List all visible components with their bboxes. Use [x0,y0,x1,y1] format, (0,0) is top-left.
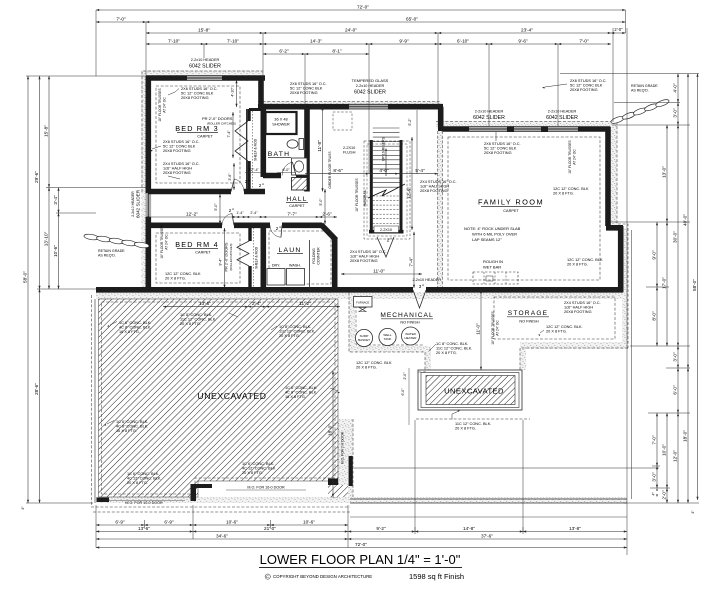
svg-text:5C 12" CONC BLK: 5C 12" CONC BLK [484,147,517,151]
svg-text:10'-0": 10'-0" [662,444,667,456]
svg-text:SHELF & ROD: SHELF & ROD [254,138,258,161]
svg-text:6'-2": 6'-2" [279,48,289,53]
svg-text:18'-0": 18'-0" [683,430,688,442]
svg-text:11'-8": 11'-8" [317,140,322,152]
svg-text:11'-0": 11'-0" [373,268,385,273]
svg-text:16 X 8 FTG.: 16 X 8 FTG. [119,330,140,334]
svg-text:FURNACE: FURNACE [356,301,369,305]
svg-text:11C 12" CONC. BLK.: 11C 12" CONC. BLK. [279,330,315,334]
svg-text:1C 8" CONC. BLK.: 1C 8" CONC. BLK. [436,342,468,346]
svg-text:18" FLOOR TRUSSES: 18" FLOOR TRUSSES [491,310,495,344]
svg-text:UNEXCAVATED: UNEXCAVATED [197,391,266,401]
svg-text:2'-0": 2'-0" [614,27,623,32]
svg-text:5C 12" CONC BLK: 5C 12" CONC BLK [181,92,214,96]
svg-text:NO FINISH: NO FINISH [400,321,419,325]
svg-text:20 X 8 FTG.: 20 X 8 FTG. [180,322,201,326]
svg-text:6042 SLIDER: 6042 SLIDER [136,189,141,218]
svg-text:M.O. FOR 2'-8 DOOR: M.O. FOR 2'-8 DOOR [341,431,345,464]
svg-text:2X6 STUDS 16" O.C.: 2X6 STUDS 16" O.C. [570,79,607,83]
svg-text:WET BAR: WET BAR [483,265,501,270]
svg-text:20 X 8 FTG.: 20 X 8 FTG. [553,192,574,196]
svg-text:2X6 STUDS 16" O.C.: 2X6 STUDS 16" O.C. [484,142,521,146]
svg-text:1C 6" CONC. BLK.: 1C 6" CONC. BLK. [127,472,159,476]
svg-text:1'-4": 1'-4" [236,211,244,215]
svg-text:7'-4": 7'-4" [227,130,231,138]
svg-text:PR 2'-0" DOORS: PR 2'-0" DOORS [202,116,233,121]
svg-text:1c6" HALF HIGH: 1c6" HALF HIGH [350,255,379,259]
svg-text:2-2X10: 2-2X10 [343,146,355,150]
svg-text:11C 12" CONC. BLK.: 11C 12" CONC. BLK. [436,347,472,351]
svg-text:8'-0": 8'-0" [652,311,657,321]
svg-text:CARPET: CARPET [195,251,211,255]
svg-text:A: A [248,178,250,182]
svg-text:11C 12" CONC. BLK.: 11C 12" CONC. BLK. [180,318,216,322]
svg-text:20X8 FOOTING: 20X8 FOOTING [570,88,598,92]
svg-text:13'-0": 13'-0" [662,166,667,178]
svg-text:2X4 STUDS 16" O.C.: 2X4 STUDS 16" O.C. [350,250,387,254]
svg-text:COUNTER: COUNTER [317,247,321,265]
svg-text:2X6 STUDS 16" O.C.: 2X6 STUDS 16" O.C. [163,140,200,144]
svg-text:5C 12" CONC BLK: 5C 12" CONC BLK [570,84,603,88]
svg-text:10'-6": 10'-6" [303,519,315,524]
svg-text:18'-0": 18'-0" [328,424,333,436]
svg-text:20 X 8 FTG.: 20 X 8 FTG. [567,263,588,267]
svg-text:4C 12" CONC. BLK: 4C 12" CONC. BLK [242,467,276,471]
svg-text:CARPET: CARPET [289,204,305,208]
svg-text:20 X 8 FTG.: 20 X 8 FTG. [242,471,263,475]
svg-text:LAUN: LAUN [279,247,302,254]
svg-text:7'-0": 7'-0" [116,16,126,21]
svg-text:20X8 FOOTING: 20X8 FOOTING [290,91,318,95]
svg-text:A: A [262,182,264,186]
svg-text:12'-6": 12'-6" [407,187,412,199]
svg-text:40'-0": 40'-0" [683,214,688,226]
svg-text:7'-4": 7'-4" [409,257,414,267]
svg-text:18" FLOOR TRUSSES: 18" FLOOR TRUSSES [355,177,359,211]
svg-text:A: A [390,237,392,241]
svg-text:1C 6" CONC. BLK.: 1C 6" CONC. BLK. [242,462,274,466]
svg-text:10'-6": 10'-6" [226,519,238,524]
svg-text:20 X 8 FTG.: 20 X 8 FTG. [165,277,186,281]
svg-text:20X8 FOOTING: 20X8 FOOTING [420,189,448,193]
svg-text:11'-2": 11'-2" [299,301,311,306]
svg-text:CARPET: CARPET [197,135,213,139]
svg-text:WASH.: WASH. [289,264,301,268]
svg-text:4'-0": 4'-0" [673,83,678,93]
svg-text:7'-10": 7'-10" [168,38,180,43]
svg-text:AT 24" OC: AT 24" OC [496,320,500,336]
svg-text:3'-6": 3'-6" [228,173,232,181]
svg-text:AS REQ'D.: AS REQ'D. [631,89,649,93]
svg-text:15'-8": 15'-8" [44,125,49,137]
svg-text:65'-0": 65'-0" [406,16,418,21]
svg-text:FLUSH: FLUSH [343,151,356,155]
svg-text:ROUGH IN: ROUGH IN [483,259,503,264]
svg-text:(ROLLER CATCHES): (ROLLER CATCHES) [229,243,233,270]
svg-text:SHOWER: SHOWER [272,122,290,127]
svg-text:2X4 STUDS 16" O.C.: 2X4 STUDS 16" O.C. [163,162,200,166]
svg-text:3'-0": 3'-0" [673,352,678,362]
svg-text:10'-6": 10'-6" [53,245,58,257]
svg-text:16 X 8 FTG.: 16 X 8 FTG. [116,429,137,433]
svg-text:1C 6" CONC. BLK.: 1C 6" CONC. BLK. [119,321,151,325]
svg-text:6'-10": 6'-10" [457,38,469,43]
svg-text:72'-0": 72'-0" [355,542,367,547]
svg-text:(ROLLER CATCHES): (ROLLER CATCHES) [207,121,236,125]
svg-text:20 X 8 FTG.: 20 X 8 FTG. [546,330,567,334]
svg-text:9'-0": 9'-0" [652,250,657,260]
svg-text:5'-2": 5'-2" [408,118,412,126]
svg-text:9'-9": 9'-9" [399,38,409,43]
svg-text:9'-6": 9'-6" [518,38,528,43]
svg-text:18" FLOOR TRUSSES: 18" FLOOR TRUSSES [568,139,572,173]
svg-text:AS REQ'D.: AS REQ'D. [98,254,116,258]
svg-text:2'-0": 2'-0" [403,372,407,380]
svg-text:21'-0": 21'-0" [264,526,276,531]
svg-text:13'-10": 13'-10" [44,231,49,246]
svg-text:12C 12" CONC. BLK: 12C 12" CONC. BLK [356,361,392,365]
svg-text:3'-0": 3'-0" [673,108,678,118]
svg-text:TANK: TANK [384,337,392,341]
svg-text:24'-0": 24'-0" [345,27,357,32]
svg-text:UP 16 RISERS: UP 16 RISERS [382,136,386,161]
svg-text:1C 6" CONC. BLK.: 1C 6" CONC. BLK. [116,420,148,424]
svg-text:12C 12" CONC. BLK: 12C 12" CONC. BLK [553,187,589,191]
svg-text:1598 sq ft Finish: 1598 sq ft Finish [409,572,464,581]
svg-text:1C 6" CONC. BLK.: 1C 6" CONC. BLK. [285,386,317,390]
svg-text:2-2x10 HEADER: 2-2x10 HEADER [356,84,385,88]
svg-text:NOTE: 4" ROCK UNDER SLAB: NOTE: 4" ROCK UNDER SLAB [464,226,521,231]
svg-text:12C 12" CONC. BLK: 12C 12" CONC. BLK [567,258,603,262]
svg-text:8'-6": 8'-6" [333,168,343,173]
svg-text:12'-0": 12'-0" [673,450,678,462]
svg-text:1c6" HALF HIGH: 1c6" HALF HIGH [564,306,593,310]
svg-text:6'-0": 6'-0" [282,168,290,172]
svg-text:5'-0": 5'-0" [319,198,323,206]
svg-text:18" FLOOR TRUSSES: 18" FLOOR TRUSSES [158,87,162,121]
svg-text:LAP SEAMS 12": LAP SEAMS 12" [472,237,502,242]
svg-text:NO FINISH: NO FINISH [519,320,538,324]
svg-text:20X8 FOOTING: 20X8 FOOTING [484,151,512,155]
svg-text:12C 12" CONC. BLK.: 12C 12" CONC. BLK. [546,325,583,329]
svg-text:BASKET: BASKET [358,338,370,342]
svg-text:7'-7": 7'-7" [287,211,297,216]
svg-text:GIRDER FLOOR TRUSS: GIRDER FLOOR TRUSS [328,151,332,189]
svg-text:C: C [266,574,269,579]
svg-text:6'-9": 6'-9" [115,519,125,524]
svg-text:6'-0": 6'-0" [673,385,678,395]
svg-text:13'-6": 13'-6" [138,526,150,531]
svg-text:20X8 FOOTING: 20X8 FOOTING [564,310,592,314]
svg-text:A: A [232,207,234,211]
svg-text:20 X 8 FTG.: 20 X 8 FTG. [127,481,148,485]
svg-text:7'-10": 7'-10" [227,38,239,43]
svg-text:HALL: HALL [286,196,307,203]
svg-text:2X6 STUDS 16" O.C.: 2X6 STUDS 16" O.C. [181,87,218,91]
svg-text:BED RM 4: BED RM 4 [175,240,219,249]
svg-text:WITH 6 MIL POLY OVER: WITH 6 MIL POLY OVER [472,232,517,237]
svg-text:29'-6": 29'-6" [34,171,39,183]
svg-text:TEMPERED GLASS: TEMPERED GLASS [352,78,389,83]
svg-text:RETAIN GRADE: RETAIN GRADE [98,249,125,253]
svg-text:5C 12" CONC BLK: 5C 12" CONC BLK [290,87,323,91]
svg-text:6042 SLIDER: 6042 SLIDER [546,115,578,121]
svg-text:A: A [422,283,424,287]
svg-text:2-2X10: 2-2X10 [380,228,392,232]
svg-text:3'-0": 3'-0" [652,472,657,482]
svg-text:MECHANICAL: MECHANICAL [380,312,433,319]
svg-text:2-2x10 HEADER: 2-2x10 HEADER [131,191,135,217]
svg-text:A: A [279,225,281,229]
svg-text:2'-4": 2'-4" [252,301,262,306]
svg-text:9'-4": 9'-4" [219,258,223,266]
svg-text:AT 24" OC: AT 24" OC [163,97,167,113]
svg-text:8'-1": 8'-1" [332,48,342,53]
svg-text:SHELF & ROD: SHELF & ROD [255,246,259,269]
svg-text:20X8 FOOTING: 20X8 FOOTING [163,171,191,175]
svg-text:20X8 FOOTING: 20X8 FOOTING [350,259,378,263]
svg-text:2'-4": 2'-4" [250,211,258,215]
svg-text:13'-6": 13'-6" [199,301,211,306]
svg-text:M.O. FOR 16-0 DOOR: M.O. FOR 16-0 DOOR [247,486,285,490]
svg-text:6042 SLIDER: 6042 SLIDER [189,64,221,70]
svg-text:UNEXCAVATED: UNEXCAVATED [444,387,504,396]
svg-text:COPYRIGHT BEYOND DESIGN ARCHIT: COPYRIGHT BEYOND DESIGN ARCHITECTURE [273,574,372,579]
svg-text:2-2x10 HEADER: 2-2x10 HEADER [548,110,577,114]
svg-text:BATH: BATH [268,151,290,158]
svg-text:1C 8" CONC. BLK.: 1C 8" CONC. BLK. [279,325,311,329]
svg-text:9'-2": 9'-2" [376,526,386,531]
svg-text:15'-8": 15'-8" [198,27,210,32]
svg-text:DRY.: DRY. [272,264,280,268]
svg-text:20 X 8 FTG.: 20 X 8 FTG. [455,427,476,431]
svg-text:CARPET: CARPET [503,209,519,213]
svg-text:14'-3": 14'-3" [310,38,322,43]
svg-text:LOWER FLOOR PLAN 1/4" = 1'-0": LOWER FLOOR PLAN 1/4" = 1'-0" [260,552,461,567]
svg-text:4C 8" CONC. BLK.: 4C 8" CONC. BLK. [285,391,317,395]
svg-text:34'-6": 34'-6" [216,533,228,538]
svg-text:FAMILY ROOM: FAMILY ROOM [478,198,544,207]
svg-text:12C 12" CONC. BLK: 12C 12" CONC. BLK [165,272,201,276]
svg-text:2'-6": 2'-6" [322,211,332,216]
svg-text:AT 24" OC: AT 24" OC [165,234,169,250]
svg-text:18" FLOOR TRUSSES: 18" FLOOR TRUSSES [160,224,164,258]
svg-text:7'-0": 7'-0" [579,38,589,43]
svg-text:4C 12" CONC. BLK.: 4C 12" CONC. BLK. [127,477,161,481]
svg-text:1C 8" CONC. BLK.: 1C 8" CONC. BLK. [180,313,212,317]
svg-text:1c6" HALF HIGH: 1c6" HALF HIGH [163,167,192,171]
svg-text:6'-0": 6'-0" [401,388,405,396]
svg-text:13'-8": 13'-8" [569,526,581,531]
svg-text:STORAGE: STORAGE [508,310,549,317]
svg-text:HEATER: HEATER [405,336,418,340]
svg-text:M.O. FOR 10-0 DOOR: M.O. FOR 10-0 DOOR [125,501,163,505]
svg-text:14'-8": 14'-8" [463,526,475,531]
svg-text:11C 12" CONC. BLK.: 11C 12" CONC. BLK. [455,422,491,426]
svg-text:16 X 8 FTG.: 16 X 8 FTG. [285,395,306,399]
svg-text:20X8 FOOTING: 20X8 FOOTING [181,96,209,100]
svg-text:4'-10": 4'-10" [231,87,235,97]
svg-text:30'-0": 30'-0" [673,231,678,243]
svg-text:6042 SLIDER: 6042 SLIDER [354,90,386,96]
svg-text:5C 12" CONC BLK: 5C 12" CONC BLK [163,145,196,149]
svg-text:4C 8" CONC. BLK.: 4C 8" CONC. BLK. [116,425,148,429]
svg-text:4C 8" CONC. BLK.: 4C 8" CONC. BLK. [119,326,151,330]
svg-text:5'-0": 5'-0" [214,203,218,211]
svg-text:2X6 STUDS 16" O.C.: 2X6 STUDS 16" O.C. [290,82,327,86]
svg-text:AT 24" OC: AT 24" OC [573,149,577,165]
svg-text:2-2x10 HEADER: 2-2x10 HEADER [413,278,442,282]
svg-text:2'-0": 2'-0" [662,490,667,500]
svg-text:20X8 FOOTING: 20X8 FOOTING [163,149,191,153]
svg-text:3'-4": 3'-4" [53,195,58,205]
svg-text:2-2x10 HEADER: 2-2x10 HEADER [191,58,220,62]
svg-text:6'-9": 6'-9" [164,519,174,524]
svg-text:20 X 8 FTG.: 20 X 8 FTG. [279,334,300,338]
svg-text:72'-0": 72'-0" [357,4,369,9]
svg-text:4'-0": 4'-0" [379,168,389,173]
svg-text:2X4 STUDS 16" O.C.: 2X4 STUDS 16" O.C. [564,301,601,305]
svg-text:12'-2": 12'-2" [186,211,198,216]
svg-text:23'-4": 23'-4" [521,27,533,32]
svg-text:1c6" HALF HIGH: 1c6" HALF HIGH [420,185,449,189]
svg-text:28'-6": 28'-6" [34,383,39,395]
svg-text:HANDRAIL: HANDRAIL [363,189,367,206]
svg-text:RETAIN GRADE: RETAIN GRADE [631,84,658,88]
svg-text:2X4 STUDS 16" O.C.: 2X4 STUDS 16" O.C. [420,180,457,184]
svg-text:58'-0": 58'-0" [692,279,697,291]
svg-text:58'-0": 58'-0" [23,271,28,283]
svg-text:20 X 8 FTG.: 20 X 8 FTG. [436,351,457,355]
svg-text:7'-0": 7'-0" [652,435,657,445]
svg-text:11'-0": 11'-0" [476,323,481,335]
svg-text:FOLDING: FOLDING [312,248,316,264]
svg-text:1'2"-4": 1'2"-4" [248,168,259,172]
svg-text:BED RM 3: BED RM 3 [175,124,219,133]
svg-text:20 X 8 FTG.: 20 X 8 FTG. [356,366,377,370]
svg-text:37'-6": 37'-6" [481,533,493,538]
